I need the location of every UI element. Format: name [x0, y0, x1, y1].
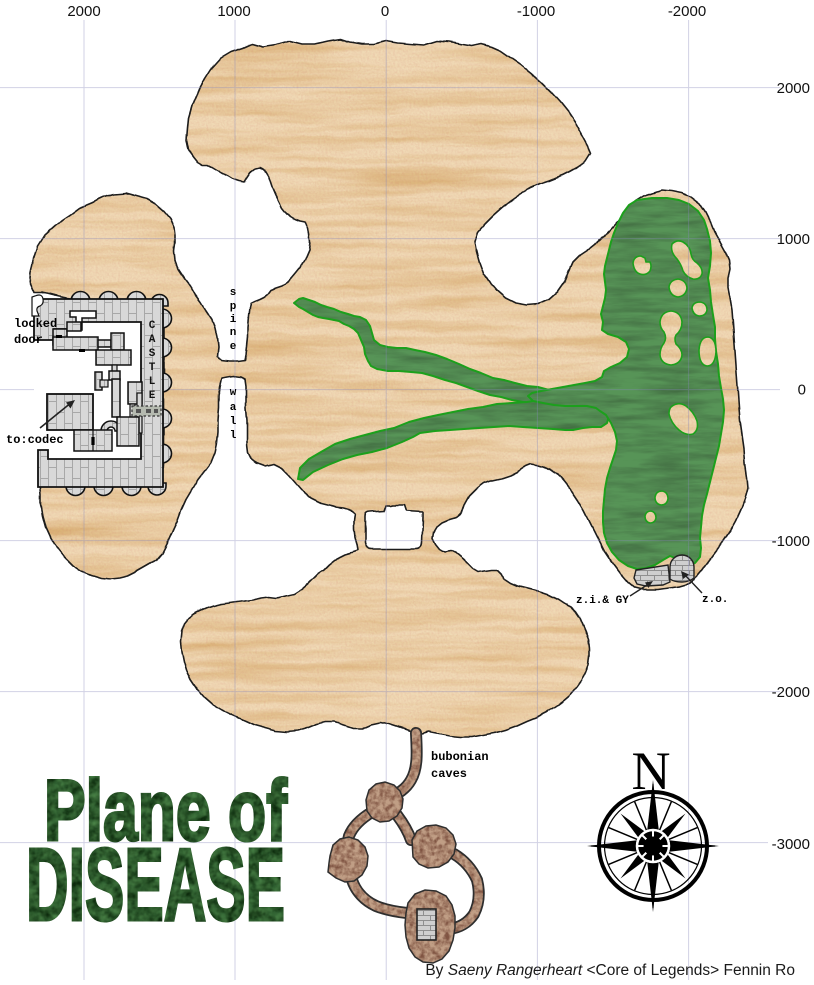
svg-text:-1000: -1000	[772, 533, 810, 550]
svg-text:-2000: -2000	[668, 3, 706, 20]
svg-text:-1000: -1000	[517, 3, 555, 20]
svg-text:n: n	[230, 327, 237, 339]
svg-text:i: i	[230, 314, 237, 326]
svg-text:z.i.& GY: z.i.& GY	[576, 595, 629, 607]
svg-text:C: C	[149, 320, 156, 332]
svg-text:locked: locked	[14, 317, 57, 331]
svg-text:p: p	[230, 301, 237, 313]
svg-text:e: e	[230, 341, 237, 353]
svg-text:w: w	[230, 387, 237, 399]
svg-text:caves: caves	[431, 767, 467, 781]
svg-text:E: E	[149, 390, 156, 402]
svg-text:0: 0	[381, 3, 389, 20]
svg-text:to:codec: to:codec	[6, 433, 64, 447]
svg-text:2000: 2000	[67, 3, 100, 20]
svg-text:s: s	[230, 287, 237, 299]
svg-text:DISEASE: DISEASE	[26, 827, 285, 942]
svg-text:l: l	[230, 430, 237, 442]
svg-text:1000: 1000	[217, 3, 250, 20]
svg-text:T: T	[149, 362, 156, 374]
svg-text:bubonian: bubonian	[431, 750, 489, 764]
svg-text:N: N	[632, 741, 671, 801]
svg-text:-2000: -2000	[772, 684, 810, 701]
svg-text:L: L	[149, 376, 156, 388]
svg-text:z.o.: z.o.	[702, 594, 728, 606]
svg-text:door: door	[14, 333, 43, 347]
svg-text:-3000: -3000	[772, 836, 810, 853]
svg-text:2000: 2000	[777, 80, 810, 97]
svg-text:1000: 1000	[777, 231, 810, 248]
svg-text:S: S	[149, 348, 156, 360]
svg-text:a: a	[230, 402, 237, 414]
svg-text:l: l	[230, 416, 237, 428]
svg-text:0: 0	[798, 382, 806, 399]
svg-text:By Saeny Rangerheart <Core of: By Saeny Rangerheart <Core of Legends> F…	[425, 962, 795, 979]
svg-text:A: A	[149, 334, 156, 346]
